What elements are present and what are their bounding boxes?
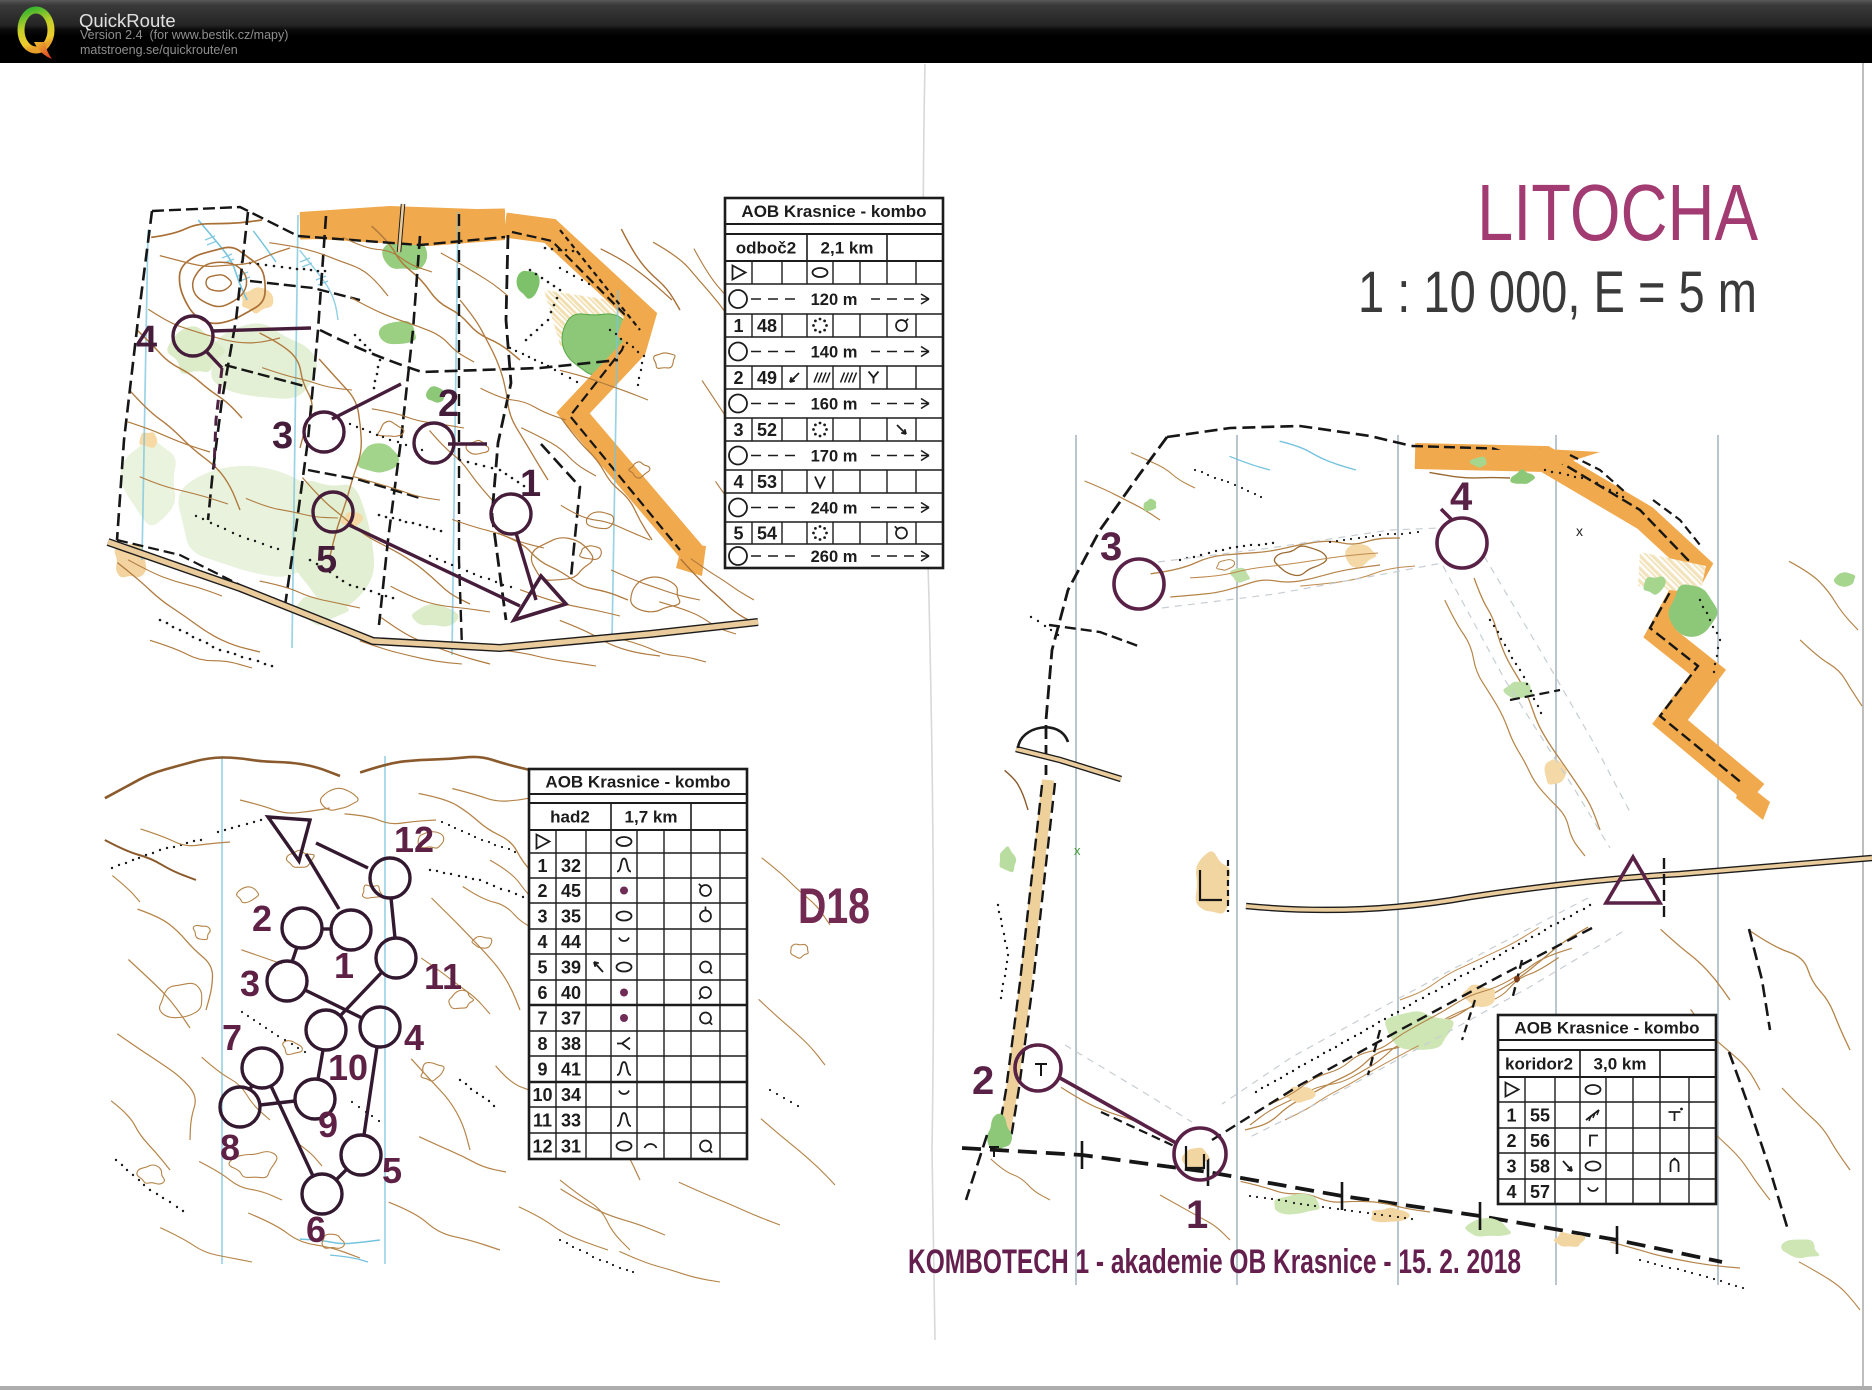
- svg-text:3,0 km: 3,0 km: [1594, 1055, 1647, 1074]
- svg-text:33: 33: [561, 1111, 581, 1131]
- svg-text:9: 9: [537, 1060, 547, 1080]
- svg-text:58: 58: [1530, 1157, 1550, 1177]
- svg-text:3: 3: [272, 415, 293, 457]
- svg-text:5: 5: [382, 1150, 402, 1191]
- svg-text:4: 4: [1450, 475, 1473, 519]
- svg-text:3: 3: [1100, 525, 1122, 569]
- svg-text:8: 8: [220, 1127, 240, 1168]
- svg-text:1 : 10 000, E = 5 m: 1 : 10 000, E = 5 m: [1358, 260, 1757, 325]
- svg-text:4: 4: [136, 319, 157, 361]
- svg-text:39: 39: [561, 958, 581, 978]
- svg-text:AOB Krasnice - kombo: AOB Krasnice - kombo: [1514, 1019, 1699, 1038]
- svg-text:48: 48: [757, 316, 777, 336]
- svg-text:KOMBOTECH 1 - akademie OB Kras: KOMBOTECH 1 - akademie OB Krasnice - 15.…: [908, 1243, 1521, 1281]
- svg-text:38: 38: [561, 1034, 581, 1054]
- svg-text:240 m: 240 m: [811, 500, 858, 518]
- svg-text:x: x: [1576, 523, 1583, 539]
- svg-text:31: 31: [561, 1137, 581, 1157]
- svg-text:5: 5: [316, 539, 337, 581]
- svg-text:D18: D18: [798, 878, 870, 934]
- svg-text:4: 4: [537, 932, 547, 952]
- svg-text:32: 32: [561, 856, 581, 876]
- svg-text:6: 6: [537, 983, 547, 1003]
- svg-text:1,7 km: 1,7 km: [625, 808, 678, 827]
- svg-text:5: 5: [537, 958, 547, 978]
- svg-text:44: 44: [561, 932, 581, 952]
- svg-text:57: 57: [1530, 1182, 1550, 1202]
- svg-text:260 m: 260 m: [811, 548, 858, 566]
- svg-text:AOB Krasnice - kombo: AOB Krasnice - kombo: [741, 202, 926, 221]
- svg-text:7: 7: [537, 1009, 547, 1029]
- svg-text:10: 10: [532, 1085, 552, 1105]
- svg-text:53: 53: [757, 472, 777, 492]
- svg-text:1: 1: [733, 316, 743, 336]
- svg-text:1: 1: [1186, 1193, 1208, 1237]
- svg-text:4: 4: [1506, 1182, 1516, 1202]
- svg-text:x: x: [1074, 843, 1081, 858]
- svg-text:4: 4: [733, 472, 743, 492]
- svg-text:3: 3: [733, 420, 743, 440]
- svg-text:45: 45: [561, 881, 581, 901]
- svg-text:7: 7: [222, 1017, 242, 1058]
- svg-text:6: 6: [306, 1209, 326, 1250]
- svg-text:52: 52: [757, 420, 777, 440]
- svg-text:2: 2: [252, 898, 272, 939]
- svg-text:3: 3: [240, 963, 260, 1004]
- svg-text:12: 12: [532, 1137, 552, 1157]
- svg-text:2: 2: [972, 1059, 994, 1103]
- svg-text:5: 5: [733, 524, 743, 544]
- svg-text:1: 1: [520, 463, 541, 505]
- svg-text:1: 1: [1506, 1106, 1516, 1126]
- svg-text:11: 11: [533, 1111, 552, 1131]
- svg-text:2: 2: [733, 368, 743, 388]
- svg-text:2: 2: [438, 383, 459, 425]
- svg-text:56: 56: [1530, 1131, 1550, 1151]
- svg-text:55: 55: [1530, 1106, 1550, 1126]
- svg-text:3: 3: [537, 907, 547, 927]
- svg-text:120 m: 120 m: [811, 291, 858, 309]
- svg-text:2: 2: [537, 881, 547, 901]
- svg-text:40: 40: [561, 983, 581, 1003]
- svg-text:koridor2: koridor2: [1505, 1055, 1573, 1074]
- svg-text:34: 34: [561, 1085, 581, 1105]
- svg-text:2: 2: [1506, 1131, 1516, 1151]
- svg-text:37: 37: [561, 1009, 581, 1029]
- svg-text:odboč2: odboč2: [736, 239, 796, 258]
- svg-text:9: 9: [318, 1104, 338, 1145]
- svg-text:170 m: 170 m: [811, 448, 858, 466]
- svg-text:12: 12: [394, 819, 434, 860]
- svg-text:160 m: 160 m: [811, 396, 858, 414]
- svg-text:8: 8: [537, 1034, 547, 1054]
- svg-text:54: 54: [757, 524, 777, 544]
- svg-text:2,1 km: 2,1 km: [821, 239, 874, 258]
- svg-text:140 m: 140 m: [811, 344, 858, 362]
- svg-text:41: 41: [561, 1060, 581, 1080]
- svg-text:1: 1: [537, 856, 547, 876]
- svg-text:1: 1: [334, 945, 354, 986]
- svg-text:10: 10: [328, 1047, 368, 1088]
- svg-text:LITOCHA: LITOCHA: [1477, 168, 1759, 257]
- svg-text:49: 49: [757, 368, 777, 388]
- svg-text:had2: had2: [550, 808, 590, 827]
- svg-text:3: 3: [1506, 1157, 1516, 1177]
- svg-text:11: 11: [424, 956, 462, 997]
- svg-text:AOB Krasnice - kombo: AOB Krasnice - kombo: [545, 773, 730, 792]
- svg-text:4: 4: [404, 1017, 424, 1058]
- svg-text:35: 35: [561, 907, 581, 927]
